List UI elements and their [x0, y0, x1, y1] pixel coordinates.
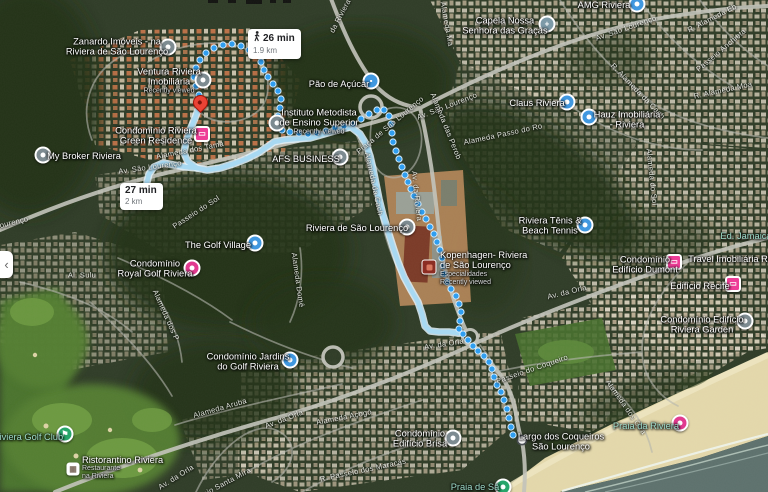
label-line: Kopenhagen- Riviera — [440, 250, 527, 260]
label-instituto-metodista[interactable]: Instituto Metodistade Ensino SuperiorRec… — [279, 108, 358, 137]
street-label: Praça de São Lourenço — [355, 94, 426, 156]
label-line: Green Residence — [115, 136, 197, 146]
label-subline: Recently viewed — [440, 278, 527, 286]
pin-amg-riviera[interactable] — [629, 0, 646, 13]
label-subline: Recently viewed — [137, 87, 201, 95]
label-line: AMG Riviera — [578, 0, 631, 10]
label-line: Riviera de São Lourenço — [66, 47, 168, 57]
label-ventura-riviera[interactable]: Ventura RivieraImobiliáriaRecently viewe… — [137, 67, 201, 96]
label-ristorantino-riviera[interactable]: Ristorantino RivieraRestaurantena Rivier… — [82, 455, 163, 481]
street-label: Passeio do Sol — [171, 193, 221, 230]
label-line: de Ensino Superior — [279, 118, 358, 128]
label-amg-riviera[interactable]: AMG Riviera — [578, 0, 631, 10]
street-label: Al. Sulu — [68, 271, 96, 280]
label-line: Condomínio — [118, 259, 193, 269]
label-edificio-recife[interactable]: Edifício Recife — [670, 281, 729, 291]
label-royal-golf-riviera[interactable]: CondomínioRoyal Golf Riviera — [118, 259, 193, 280]
label-hauz-imobiliaria[interactable]: Hauz Imobiliária- Riviera — [594, 110, 661, 131]
label-afs-business[interactable]: AFS BUSINESS — [272, 154, 340, 164]
route-distance: 1.9 km — [253, 46, 295, 56]
label-line: Claus Riviera — [509, 98, 564, 108]
label-line: - Riviera — [594, 120, 661, 130]
label-line: My Broker Riviera — [47, 151, 121, 161]
label-line: Beach Tennis — [519, 226, 582, 236]
route-distance: 2 km — [125, 197, 157, 207]
label-line: do Golf Riviera — [207, 362, 290, 372]
route-time: 26 min — [263, 33, 295, 45]
label-riviera-green-residence[interactable]: Condomínio RivieraGreen Residence — [115, 126, 197, 147]
label-line: Condomínio Edifício — [660, 315, 743, 325]
label-line: Riviera de São Lourenço — [306, 223, 408, 233]
label-line: Edifício Dumont — [612, 265, 678, 275]
label-edificio-brisa[interactable]: CondomínioEdifício Brisa — [393, 429, 447, 450]
street-label: Passeio Santa Míra — [186, 465, 253, 492]
label-my-broker-riviera[interactable]: My Broker Riviera — [47, 151, 121, 161]
label-line: Capela Nossa — [462, 16, 547, 26]
label-line: Senhora das Graças — [462, 26, 547, 36]
label-line: Ventura Riviera — [137, 67, 201, 77]
label-line: Largo dos Coqueiros — [518, 432, 604, 442]
label-pao-de-acucar[interactable]: Pão de Açúcar — [309, 79, 369, 89]
label-the-golf-village[interactable]: The Golf Village — [185, 240, 251, 250]
street-label: Av. da Orla — [264, 408, 305, 431]
street-label: R. Passeio dos Maracás — [319, 456, 407, 483]
map-labels-layer: Av. São LourençoAv. São LourençoAv. São … — [0, 0, 768, 492]
label-praia-de-sao[interactable]: Praia de Sã — [451, 482, 500, 492]
label-subline: na Riviera — [82, 473, 163, 481]
street-label: Passeio Anchieta — [694, 27, 748, 74]
route-time: 27 min — [125, 185, 157, 197]
label-edificio-dumont[interactable]: CondomínioEdifício Dumont — [612, 255, 678, 276]
street-label: da Riviera — [327, 0, 352, 34]
label-line: Condomínio Riviera — [115, 126, 197, 136]
street-label: Av. São Lourenço — [594, 13, 657, 42]
label-kopenhagen-riviera[interactable]: Kopenhagen- Rivierade São LourençoEspeci… — [440, 250, 527, 286]
route-badge-27min[interactable]: 27 min 2 km — [120, 183, 163, 210]
walking-person-icon — [253, 31, 261, 46]
street-label: Alameda do Sol — [645, 148, 660, 206]
label-riviera-de-sao-lourenco[interactable]: Riviera de São Lourenço — [306, 223, 408, 233]
label-line: Condomínio Jardins — [207, 352, 290, 362]
label-zanardo-imoveis[interactable]: Zanardo Imóveis - naRiviera de São Loure… — [66, 37, 168, 58]
street-label: Alameda Açogó — [315, 407, 372, 427]
street-label: Av. da Riviera — [410, 171, 424, 222]
street-label: Alameda Ma — [439, 1, 456, 47]
street-label: Alameda Passo do Ro — [463, 121, 543, 147]
label-line: Riviera Garden — [660, 325, 743, 335]
label-line: Instituto Metodista — [279, 108, 358, 118]
street-label: Av. São Lourenço — [118, 158, 182, 176]
label-line: Hauz Imobiliária — [594, 110, 661, 120]
label-subline: Recently viewed — [279, 128, 358, 136]
map-canvas[interactable]: Av. São LourençoAv. São LourençoAv. São … — [0, 0, 768, 492]
label-line: Zanardo Imóveis - na — [66, 37, 168, 47]
label-largo-dos-coqueiros[interactable]: Largo dos CoqueirosSão Lourenço — [518, 432, 604, 453]
label-line: AFS BUSINESS — [272, 154, 340, 164]
street-label: Av. da Orla — [423, 336, 464, 351]
label-claus-riviera[interactable]: Claus Riviera — [509, 98, 564, 108]
label-travel-imobiliaria[interactable]: Travel Imobiliária Rivie — [688, 254, 768, 264]
street-label: Passeio do Coqueiro — [495, 352, 569, 385]
label-line: Praia da Riviera — [613, 421, 679, 431]
label-line: Ed. Jamaica — [720, 231, 768, 241]
label-riviera-garden[interactable]: Condomínio EdifícioRiviera Garden — [660, 315, 743, 336]
label-capela-nossa-senhora[interactable]: Capela NossaSenhora das Graças — [462, 16, 547, 37]
label-line: Edifício Brisa — [393, 439, 447, 449]
label-line: Praia de Sã — [451, 482, 500, 492]
route-badge-26min[interactable]: 26 min 1.9 km — [248, 29, 301, 59]
street-label: Alameda dos P — [151, 288, 181, 342]
label-ed-jamaica[interactable]: Ed. Jamaica — [720, 231, 768, 241]
label-line: Royal Golf Riviera — [118, 269, 193, 279]
label-subline: Especialidades — [440, 271, 527, 279]
label-line: Condomínio — [393, 429, 447, 439]
label-line: Imobiliária — [137, 77, 201, 87]
label-riviera-golf-club[interactable]: Riviera Golf Club — [0, 432, 63, 442]
label-line: Travel Imobiliária Rivie — [688, 254, 768, 264]
label-praia-da-riviera[interactable]: Praia da Riviera — [613, 421, 679, 431]
label-jardins-do-golf[interactable]: Condomínio Jardinsdo Golf Riviera — [207, 352, 290, 373]
street-label: Alameda Domê — [290, 252, 307, 308]
street-label: R. Alameda Moa — [693, 79, 753, 100]
label-line: Edifício Recife — [670, 281, 729, 291]
label-line: The Golf Village — [185, 240, 251, 250]
label-line: Pão de Açúcar — [309, 79, 369, 89]
street-label: ourenço — [0, 214, 29, 230]
street-label: Alameda Aruba — [192, 396, 248, 420]
label-line: Ristorantino Riviera — [82, 455, 163, 465]
pin-ristorantino-riviera[interactable]: ▦ — [67, 463, 80, 476]
pin-kopenhagen-riviera[interactable] — [422, 260, 437, 275]
chevron-left-icon: ‹ — [4, 257, 8, 272]
label-line: de São Lourenço — [440, 260, 527, 270]
street-label: R. Alameda Eb — [686, 2, 738, 35]
panel-collapse-button[interactable]: ‹ — [0, 251, 13, 278]
label-line: Riviera Tênis & — [519, 216, 582, 226]
label-riviera-tenis[interactable]: Riviera Tênis &Beach Tennis — [519, 216, 582, 237]
street-label: Av. da Orla — [546, 283, 587, 301]
label-line: Riviera Golf Club — [0, 432, 63, 442]
label-line: São Lourenço — [518, 442, 604, 452]
label-line: Condomínio — [612, 255, 678, 265]
street-label: Alameda da Cach — [363, 152, 385, 217]
